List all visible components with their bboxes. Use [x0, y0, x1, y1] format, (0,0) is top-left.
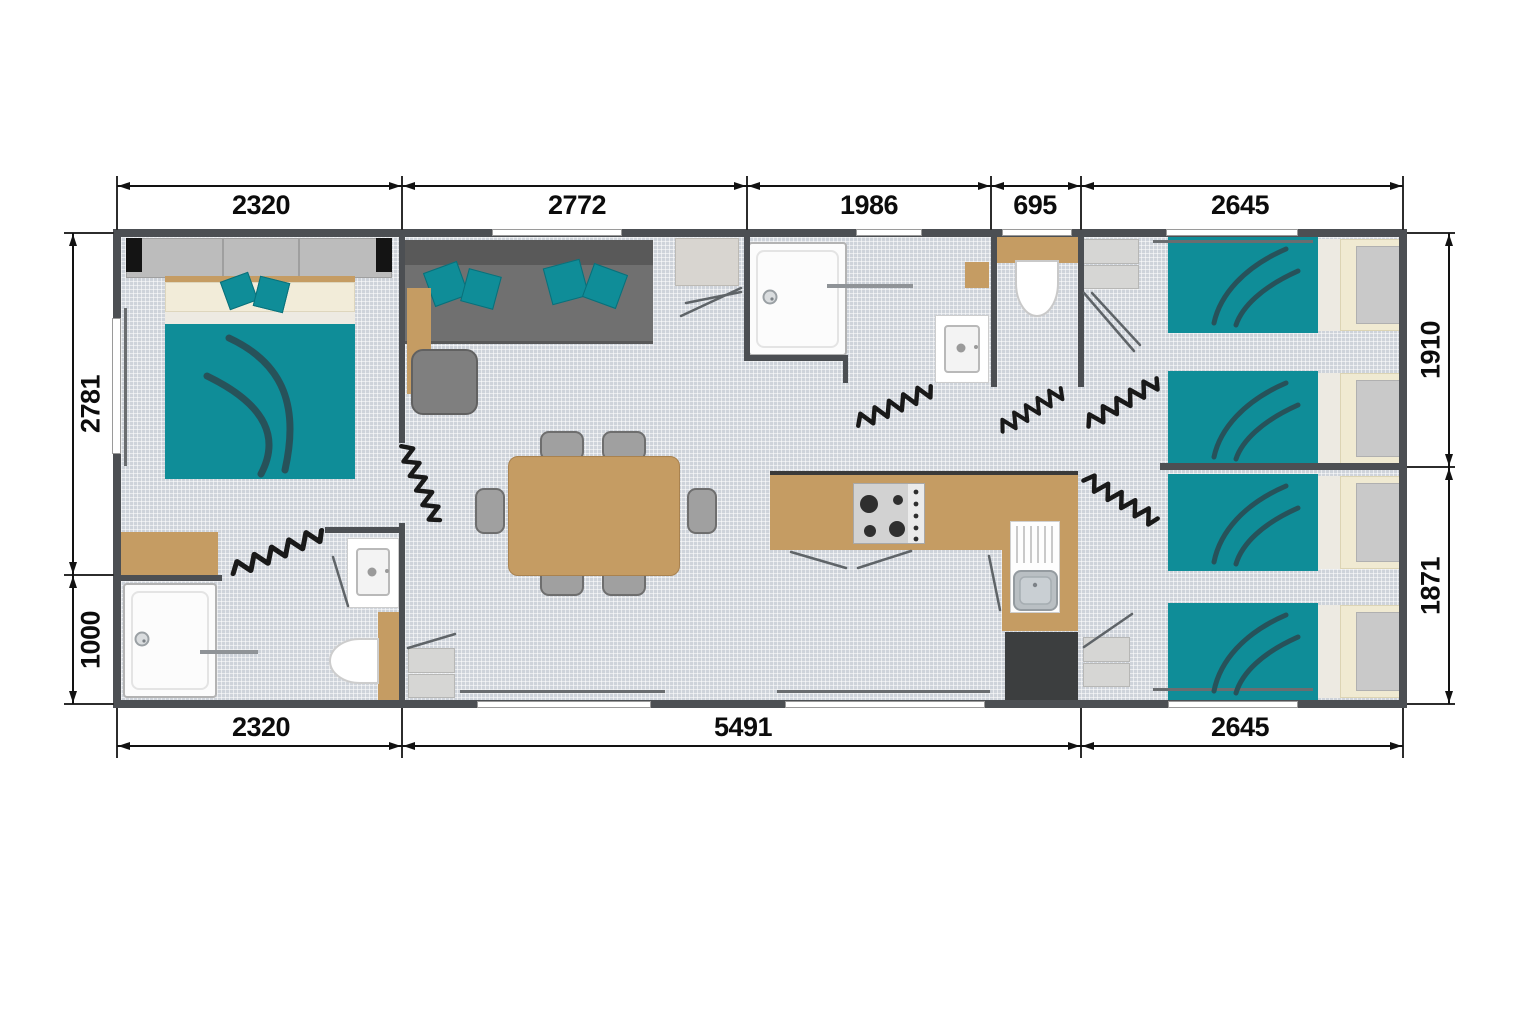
cooktop-controls-strip [908, 484, 924, 543]
refrigerator-block [1005, 632, 1078, 700]
dim-arrow [1445, 234, 1453, 246]
dim-label-right-1: 1910 [1418, 321, 1445, 379]
bedroom-divider-wall [1160, 463, 1399, 470]
dim-label-top-1: 2320 [232, 192, 290, 219]
dim-arrow [118, 182, 130, 190]
shower-tray [123, 583, 217, 698]
shower-room-wall-stub [843, 355, 848, 383]
dim-arrow [1082, 742, 1094, 750]
dim-label-left-1: 2781 [78, 375, 105, 433]
dim-label-top-3: 1986 [840, 192, 898, 219]
dining-table [508, 456, 680, 576]
single-bed-pillow [1356, 483, 1402, 562]
washbasin-bowl [356, 548, 390, 596]
dining-chair [687, 488, 717, 534]
shower-tray [748, 242, 847, 356]
window [112, 318, 121, 454]
cabinet-divider [222, 238, 224, 278]
entry-step-shelf [408, 674, 455, 698]
hall-shelf [1083, 265, 1139, 289]
extension-line [401, 708, 403, 758]
entry-step-shelf [408, 648, 455, 673]
bedroom-dresser [121, 532, 218, 576]
dim-label-top-4: 695 [1013, 192, 1057, 219]
single-bed-pillow [1356, 380, 1402, 457]
dim-arrow [1068, 742, 1080, 750]
curtain-rail [1153, 688, 1313, 691]
sofa-front-edge [400, 341, 653, 344]
window-rail [460, 690, 665, 693]
outer-wall-right [1399, 229, 1407, 708]
bathroom-shelf [965, 262, 989, 288]
bathroom-wall [325, 527, 402, 533]
dim-arrow [403, 742, 415, 750]
wc-wall [991, 237, 997, 387]
washbasin-bowl [944, 325, 980, 373]
window [477, 701, 651, 708]
dim-arrow [389, 182, 401, 190]
dim-arrow [69, 576, 77, 588]
sink-unit [1010, 521, 1060, 613]
single-bed-duvet [1168, 237, 1318, 333]
single-bed-sheet [1318, 239, 1340, 331]
single-bed-pillow [1356, 612, 1402, 691]
dining-chair [475, 488, 505, 534]
extension-line [1080, 708, 1082, 758]
dim-arrow [403, 182, 415, 190]
dim-arrow [978, 182, 990, 190]
dim-arrow [1082, 182, 1094, 190]
single-bed-duvet [1168, 371, 1318, 466]
window [856, 229, 922, 236]
cabinet-divider [298, 238, 300, 278]
entrance-door-leaf [675, 238, 739, 286]
window-rail [777, 690, 990, 693]
dim-label-top-5: 2645 [1211, 192, 1269, 219]
ottoman [411, 349, 478, 415]
dim-label-bottom-2: 5491 [714, 714, 772, 741]
dim-arrow [1445, 454, 1453, 466]
dim-arrow [389, 742, 401, 750]
single-bed-pillow [1356, 246, 1402, 324]
window [1002, 229, 1072, 236]
extension-line [116, 708, 118, 758]
towel-bar [200, 650, 258, 654]
outer-wall-left [113, 229, 121, 708]
dim-arrow [734, 182, 746, 190]
bathroom-wall [121, 575, 222, 581]
dim-arrow [1068, 182, 1080, 190]
dimension-line-bottom [117, 745, 1403, 747]
single-bed-duvet [1168, 474, 1318, 571]
single-bed-sheet [1318, 605, 1340, 698]
dim-label-left-2: 1000 [78, 611, 105, 669]
dim-arrow [69, 562, 77, 574]
hall-shelf [1083, 239, 1139, 264]
double-bed-duvet [165, 324, 355, 479]
window [1166, 229, 1298, 236]
single-bed-sheet [1318, 476, 1340, 569]
dim-label-right-2: 1871 [1418, 557, 1445, 615]
dim-arrow [1390, 182, 1402, 190]
towel-bar [827, 284, 913, 288]
dim-arrow [1390, 742, 1402, 750]
dim-arrow [1445, 468, 1453, 480]
headboard-cabinet [126, 238, 392, 278]
mobile-home-floor-plan: 2320 2772 1986 695 2645 2320 5491 2645 2… [0, 0, 1536, 1024]
shower-room-wall [744, 355, 848, 361]
dimension-line-top [117, 185, 1403, 187]
double-bed-sheet [165, 312, 355, 324]
hall-shelf [1083, 663, 1130, 687]
shower-room-wall [744, 237, 750, 359]
curtain-rail [124, 308, 127, 466]
dim-arrow [748, 182, 760, 190]
single-bed-duvet [1168, 603, 1318, 700]
dim-label-top-2: 2772 [548, 192, 606, 219]
dim-arrow [69, 691, 77, 703]
speaker-block [126, 238, 142, 272]
bedroom-partition-wall [399, 523, 405, 700]
window [785, 701, 985, 708]
dim-arrow [69, 234, 77, 246]
sofa-backrest [400, 240, 653, 265]
dimension-line-left [72, 233, 74, 704]
dim-label-bottom-1: 2320 [232, 714, 290, 741]
extension-line [1402, 708, 1404, 758]
hall-shelf [1083, 637, 1130, 662]
window [1168, 701, 1298, 708]
speaker-block [376, 238, 392, 272]
hallway-wall [1078, 237, 1084, 387]
bedroom-partition-wall [399, 237, 405, 443]
dim-label-bottom-3: 2645 [1211, 714, 1269, 741]
wc-counter [995, 237, 1078, 263]
dim-arrow [1445, 691, 1453, 703]
dim-arrow [118, 742, 130, 750]
curtain-rail [1153, 240, 1313, 243]
dim-arrow [992, 182, 1004, 190]
window [492, 229, 622, 236]
single-bed-sheet [1318, 373, 1340, 464]
